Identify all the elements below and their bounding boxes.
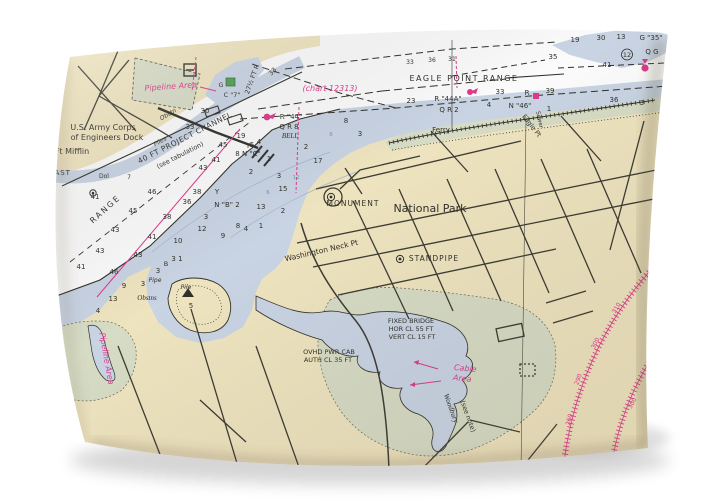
fabric-shading	[55, 29, 668, 466]
nautical-chart: U.S. Army Corpsof Engineers DockFt Miffl…	[40, 10, 668, 500]
pillow-image: U.S. Army Corpsof Engineers DockFt Miffl…	[0, 0, 714, 500]
product-photo: U.S. Army Corpsof Engineers DockFt Miffl…	[0, 0, 714, 500]
